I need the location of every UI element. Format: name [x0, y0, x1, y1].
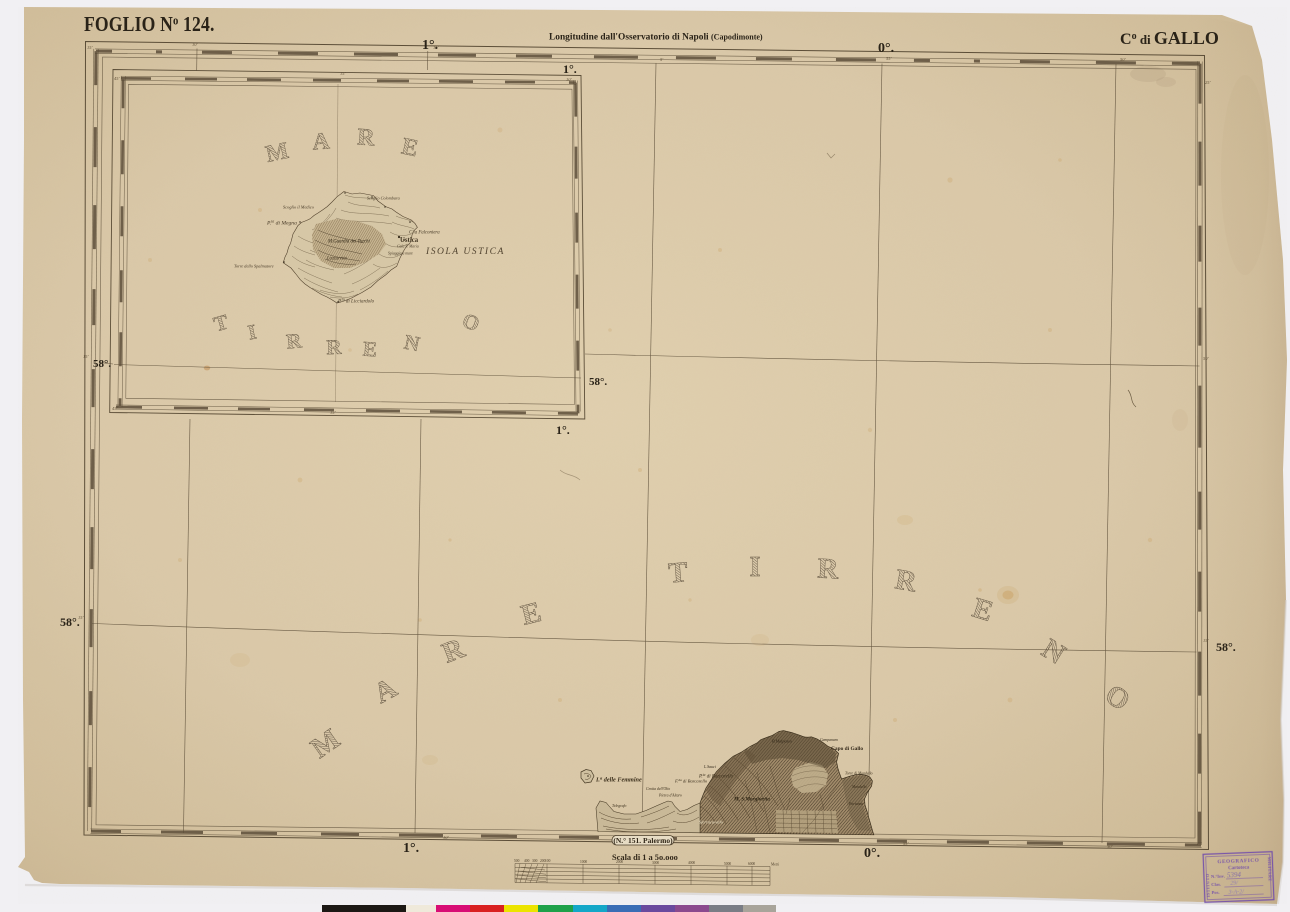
svg-text:M. S.Margherita: M. S.Margherita: [733, 797, 770, 803]
svg-text:400: 400: [524, 859, 530, 863]
svg-text:Scoglio Colombara: Scoglio Colombara: [367, 196, 400, 201]
svg-text:Metri: Metri: [771, 863, 779, 867]
svg-text:1°.: 1°.: [556, 423, 570, 437]
svg-text:I: I: [749, 551, 760, 583]
svg-text:Ustica: Ustica: [400, 237, 419, 244]
svg-text:Partanna: Partanna: [848, 802, 863, 806]
svg-text:Grotta dell'Olio: Grotta dell'Olio: [646, 787, 670, 791]
svg-text:Spiaggia a mare: Spiaggia a mare: [388, 252, 413, 256]
svg-text:5000: 5000: [724, 862, 731, 866]
svg-text:Mondello: Mondello: [851, 785, 867, 789]
svg-text:58°.: 58°.: [60, 615, 80, 629]
svg-text:4000: 4000: [688, 861, 695, 865]
svg-text:Longitudine dall'Osservatorio: Longitudine dall'Osservatorio di Napoli …: [549, 33, 763, 43]
svg-text:Torre dello Spalmatore: Torre dello Spalmatore: [234, 264, 274, 269]
svg-text:R: R: [356, 124, 376, 151]
svg-text:500: 500: [514, 859, 520, 863]
svg-text:ISTITUTO: ISTITUTO: [1205, 873, 1211, 897]
svg-text:ISOLA USTICA: ISOLA USTICA: [425, 246, 505, 257]
svg-text:3000: 3000: [652, 861, 659, 865]
svg-text:1°.: 1°.: [563, 62, 577, 76]
svg-text:58°.: 58°.: [1216, 640, 1236, 654]
svg-text:58°.: 58°.: [93, 358, 111, 370]
svg-text:Pietra d'Altaro: Pietra d'Altaro: [658, 794, 682, 798]
svg-text:Sferracavallo: Sferracavallo: [699, 820, 724, 825]
svg-text:100: 100: [545, 859, 551, 863]
svg-text:T: T: [667, 556, 689, 589]
svg-text:Torre di Mondello: Torre di Mondello: [845, 772, 873, 776]
svg-text:A: A: [312, 128, 332, 155]
svg-text:0°.: 0°.: [878, 41, 894, 56]
svg-text:Telegrafo: Telegrafo: [612, 804, 627, 808]
svg-text:M.Guardia dei Turchi: M.Guardia dei Turchi: [327, 240, 371, 245]
svg-text:R: R: [817, 552, 841, 585]
svg-text:300: 300: [532, 859, 538, 863]
svg-text:5394: 5394: [1227, 871, 1242, 880]
svg-text:MILITARE: MILITARE: [1267, 857, 1273, 882]
svg-text:P.ta di Megna: P.ta di Megna: [266, 219, 297, 227]
svg-text:B.Malpasso: B.Malpasso: [772, 739, 792, 744]
svg-text:2000: 2000: [616, 860, 623, 864]
svg-text:6000: 6000: [748, 862, 755, 866]
svg-text:L.Sauci: L.Sauci: [703, 765, 716, 769]
svg-text:1000: 1000: [580, 860, 587, 864]
svg-text:58°.: 58°.: [589, 376, 607, 388]
svg-text:FOGLIO No 124.: FOGLIO No 124.: [84, 12, 215, 36]
svg-text:E: E: [362, 337, 378, 362]
svg-text:R: R: [326, 335, 342, 359]
svg-text:Campanaro: Campanaro: [820, 738, 838, 742]
svg-text:C.la Falconiera: C.la Falconiera: [409, 231, 440, 236]
svg-text:1°.: 1°.: [403, 841, 419, 856]
svg-text:Clas.: Clas.: [1211, 882, 1221, 887]
svg-text:Pos.: Pos.: [1211, 890, 1219, 895]
svg-text:Cala S. Maria: Cala S. Maria: [397, 245, 419, 249]
svg-text:I.a delle Femmine: I.a delle Femmine: [595, 776, 642, 784]
svg-text:Lazzaretto: Lazzaretto: [326, 257, 348, 262]
svg-text:N.°Inv.: N.°Inv.: [1211, 874, 1225, 880]
svg-text:Scoglio il Medico: Scoglio il Medico: [283, 205, 315, 210]
svg-text:Capo di Gallo: Capo di Gallo: [831, 746, 863, 752]
svg-text:0°.: 0°.: [864, 846, 880, 861]
